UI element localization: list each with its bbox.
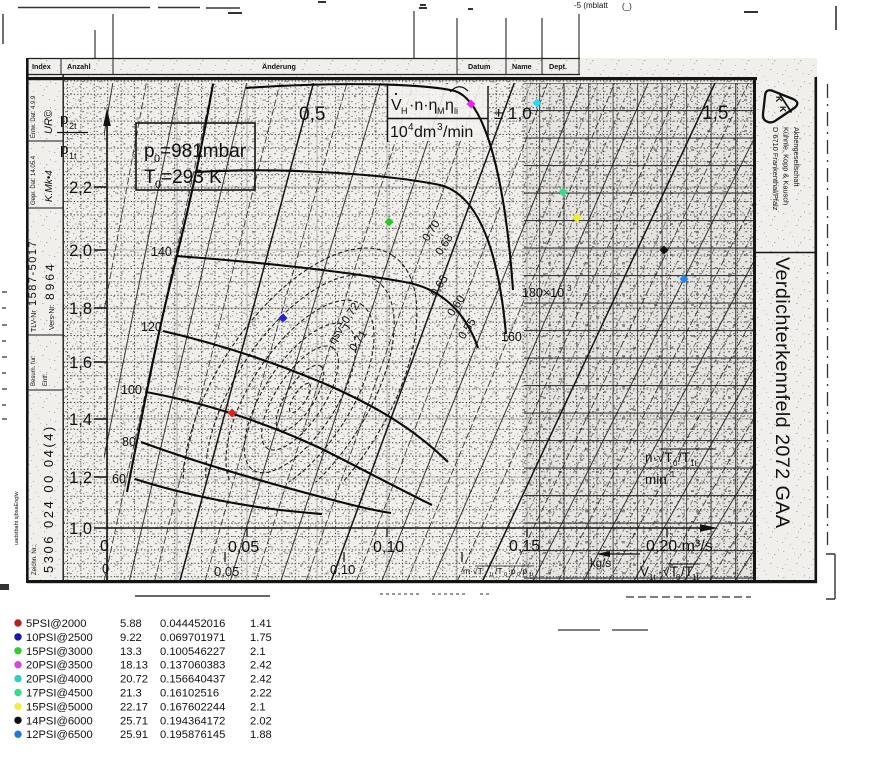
svg-text:p: p — [60, 111, 68, 128]
svg-text:Datum: Datum — [468, 62, 490, 71]
svg-text:K.Mk•4: K.Mk•4 — [44, 170, 55, 202]
svg-text:1,0: 1,0 — [69, 520, 92, 538]
svg-text:Änderung: Änderung — [262, 62, 296, 71]
svg-text:dm: dm — [414, 124, 436, 141]
svg-text:=981mbar: =981mbar — [160, 141, 247, 162]
svg-text:1.41: 1.41 — [250, 618, 272, 630]
svg-text:li: li — [454, 106, 458, 116]
svg-text:2.1: 2.1 — [250, 646, 266, 658]
svg-text:·p: ·p — [508, 566, 516, 576]
svg-text:M: M — [437, 106, 445, 116]
svg-text:kg/s: kg/s — [590, 558, 611, 570]
svg-text:1,5: 1,5 — [702, 103, 728, 124]
svg-text:1t: 1t — [529, 572, 534, 578]
svg-text:25.71: 25.71 — [120, 715, 148, 727]
svg-text:20.72: 20.72 — [120, 674, 148, 686]
svg-text:140: 140 — [151, 245, 172, 259]
svg-text:0,5: 0,5 — [299, 104, 325, 125]
svg-text:-1: -1 — [668, 470, 676, 479]
svg-text:100: 100 — [121, 383, 142, 397]
svg-text:20PSI@3500: 20PSI@3500 — [26, 660, 93, 672]
svg-text:p: p — [144, 141, 155, 162]
svg-text:/T: /T — [678, 450, 690, 465]
svg-text:80: 80 — [122, 435, 136, 449]
svg-text:1t: 1t — [690, 459, 697, 468]
svg-text:/min: /min — [443, 124, 473, 141]
svg-text:21.3: 21.3 — [120, 688, 142, 700]
svg-text:Entw. Dat: 4.9.9: Entw. Dat: 4.9.9 — [31, 95, 37, 138]
svg-text:0.069701971: 0.069701971 — [160, 632, 225, 644]
svg-text:TLV-Nr: TLV-Nr — [31, 310, 38, 332]
svg-text:13.3: 13.3 — [120, 646, 142, 658]
svg-text:(_): (_) — [622, 2, 632, 11]
svg-text:Kühnle, Kopp & Kausch: Kühnle, Kopp & Kausch — [782, 127, 791, 205]
svg-text:/p: /p — [520, 566, 527, 576]
svg-text:0.16102516: 0.16102516 — [160, 688, 219, 700]
svg-text:1587-5017: 1587-5017 — [27, 240, 39, 306]
svg-text:uadstbaht sjbsaEnglw: uadstbaht sjbsaEnglw — [14, 491, 20, 545]
svg-text:2.02: 2.02 — [250, 715, 272, 727]
svg-text:Vers-Nr:: Vers-Nr: — [49, 304, 56, 330]
svg-text:Entf:: Entf: — [43, 373, 49, 386]
svg-text:1t: 1t — [489, 572, 494, 578]
svg-text:20PSI@4000: 20PSI@4000 — [26, 674, 93, 686]
svg-text:3: 3 — [567, 284, 572, 293]
svg-text:2,2: 2,2 — [69, 179, 92, 197]
svg-text:H: H — [401, 106, 408, 116]
svg-text:5PSI@2000: 5PSI@2000 — [26, 618, 87, 630]
svg-text:Name: Name — [512, 62, 532, 71]
svg-text:15PSI@3000: 15PSI@3000 — [26, 646, 93, 658]
svg-text:17PSI@4500: 17PSI@4500 — [26, 688, 93, 700]
svg-text:0.167602244: 0.167602244 — [160, 701, 225, 713]
svg-text:p: p — [60, 141, 68, 158]
svg-text:25.91: 25.91 — [120, 729, 148, 741]
svg-text:0: 0 — [504, 572, 507, 578]
svg-text:UR©: UR© — [43, 109, 55, 134]
svg-text:18.13: 18.13 — [120, 660, 148, 672]
svg-text:1,8: 1,8 — [69, 300, 92, 318]
svg-text:180×10: 180×10 — [522, 286, 564, 300]
svg-text:Besum. fur:: Besum. fur: — [31, 355, 37, 386]
svg-text:0.156640437: 0.156640437 — [160, 674, 225, 686]
svg-text:Aktiengesellschaft: Aktiengesellschaft — [792, 127, 801, 187]
svg-text:=293 K: =293 K — [161, 167, 222, 188]
svg-text:0.137060383: 0.137060383 — [160, 660, 225, 672]
svg-text:1t: 1t — [649, 573, 656, 582]
svg-text:0.194364172: 0.194364172 — [160, 715, 225, 727]
svg-text:·n·η: ·n·η — [409, 97, 437, 114]
svg-text:9.22: 9.22 — [120, 632, 142, 644]
svg-text:Verdichterkennfeld 2072 GAA: Verdichterkennfeld 2072 GAA — [771, 257, 793, 529]
svg-text:Dept.: Dept. — [549, 62, 567, 71]
svg-text:0,20 m³/s: 0,20 m³/s — [646, 538, 713, 555]
svg-text:Anzahl: Anzahl — [67, 62, 91, 71]
svg-text:0,15: 0,15 — [509, 538, 540, 555]
svg-text:2,0: 2,0 — [69, 242, 92, 260]
svg-text:2.42: 2.42 — [250, 674, 272, 686]
svg-text:0,10: 0,10 — [330, 562, 355, 577]
svg-text:120: 120 — [141, 320, 162, 334]
svg-text:Index: Index — [32, 62, 51, 71]
svg-text:m·√T: m·√T — [463, 566, 483, 576]
svg-text:n·√T: n·√T — [645, 450, 673, 465]
svg-text:1,2: 1,2 — [69, 469, 92, 487]
svg-text:0.100546227: 0.100546227 — [160, 646, 225, 658]
svg-text:10PSI@2500: 10PSI@2500 — [26, 632, 93, 644]
svg-text:0,05: 0,05 — [228, 539, 259, 556]
svg-text:12PSI@6500: 12PSI@6500 — [26, 729, 93, 741]
svg-text:0,10: 0,10 — [373, 539, 404, 556]
svg-text:22.17: 22.17 — [120, 701, 148, 713]
svg-text:Gepr. Dat: 14.05.4: Gepr. Dat: 14.05.4 — [31, 155, 37, 205]
svg-text:15PSI@5000: 15PSI@5000 — [26, 701, 93, 713]
svg-text:5306 024 00 04(4): 5306 024 00 04(4) — [41, 424, 56, 573]
svg-text:0: 0 — [102, 561, 109, 576]
svg-text:2.22: 2.22 — [250, 688, 272, 700]
svg-text:10: 10 — [390, 124, 408, 141]
svg-text:1,6: 1,6 — [69, 354, 92, 372]
svg-text:1t: 1t — [69, 151, 77, 161]
svg-text:0.044452016: 0.044452016 — [160, 618, 225, 630]
svg-text:160: 160 — [501, 330, 522, 344]
svg-text:0: 0 — [100, 538, 109, 555]
svg-text:0.195876145: 0.195876145 — [160, 729, 225, 741]
svg-text:min: min — [645, 472, 667, 487]
svg-text:D 6710 Frankenthal/Pfalz: D 6710 Frankenthal/Pfalz — [771, 127, 780, 211]
svg-text:1,4: 1,4 — [69, 411, 92, 429]
svg-text:2.1: 2.1 — [250, 701, 266, 713]
svg-text:K: K — [778, 106, 788, 113]
svg-text:/T: /T — [495, 566, 503, 576]
svg-text:-5 (mblatt: -5 (mblatt — [574, 1, 609, 10]
svg-text:2t: 2t — [69, 121, 77, 131]
svg-text:0,05: 0,05 — [214, 564, 239, 579]
svg-text:V: V — [640, 564, 649, 579]
svg-text:1.75: 1.75 — [250, 632, 272, 644]
svg-text:8964: 8964 — [43, 261, 57, 300]
svg-text:60: 60 — [112, 472, 126, 486]
svg-text:η: η — [445, 97, 454, 114]
svg-text:1.88: 1.88 — [250, 729, 272, 741]
svg-text:2.42: 2.42 — [250, 660, 272, 672]
svg-text:Zeichn. Nr.:: Zeichn. Nr.: — [32, 544, 38, 575]
svg-text:K: K — [774, 96, 784, 103]
svg-text:± 1,0: ± 1,0 — [494, 104, 532, 123]
svg-text:1t: 1t — [692, 573, 699, 582]
svg-text:5.88: 5.88 — [120, 618, 142, 630]
svg-text:14PSI@6000: 14PSI@6000 — [26, 715, 93, 727]
